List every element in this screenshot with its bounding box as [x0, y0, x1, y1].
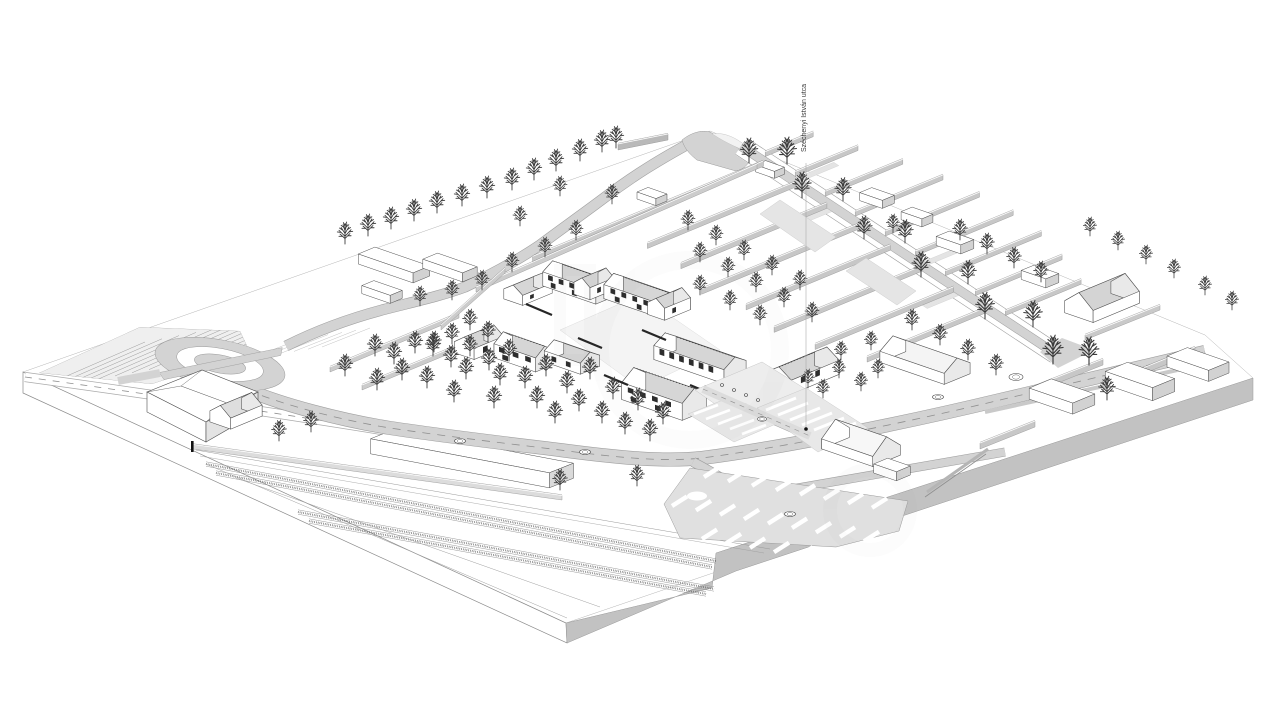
svg-text:Széchenyi István utca: Széchenyi István utca [801, 84, 808, 152]
